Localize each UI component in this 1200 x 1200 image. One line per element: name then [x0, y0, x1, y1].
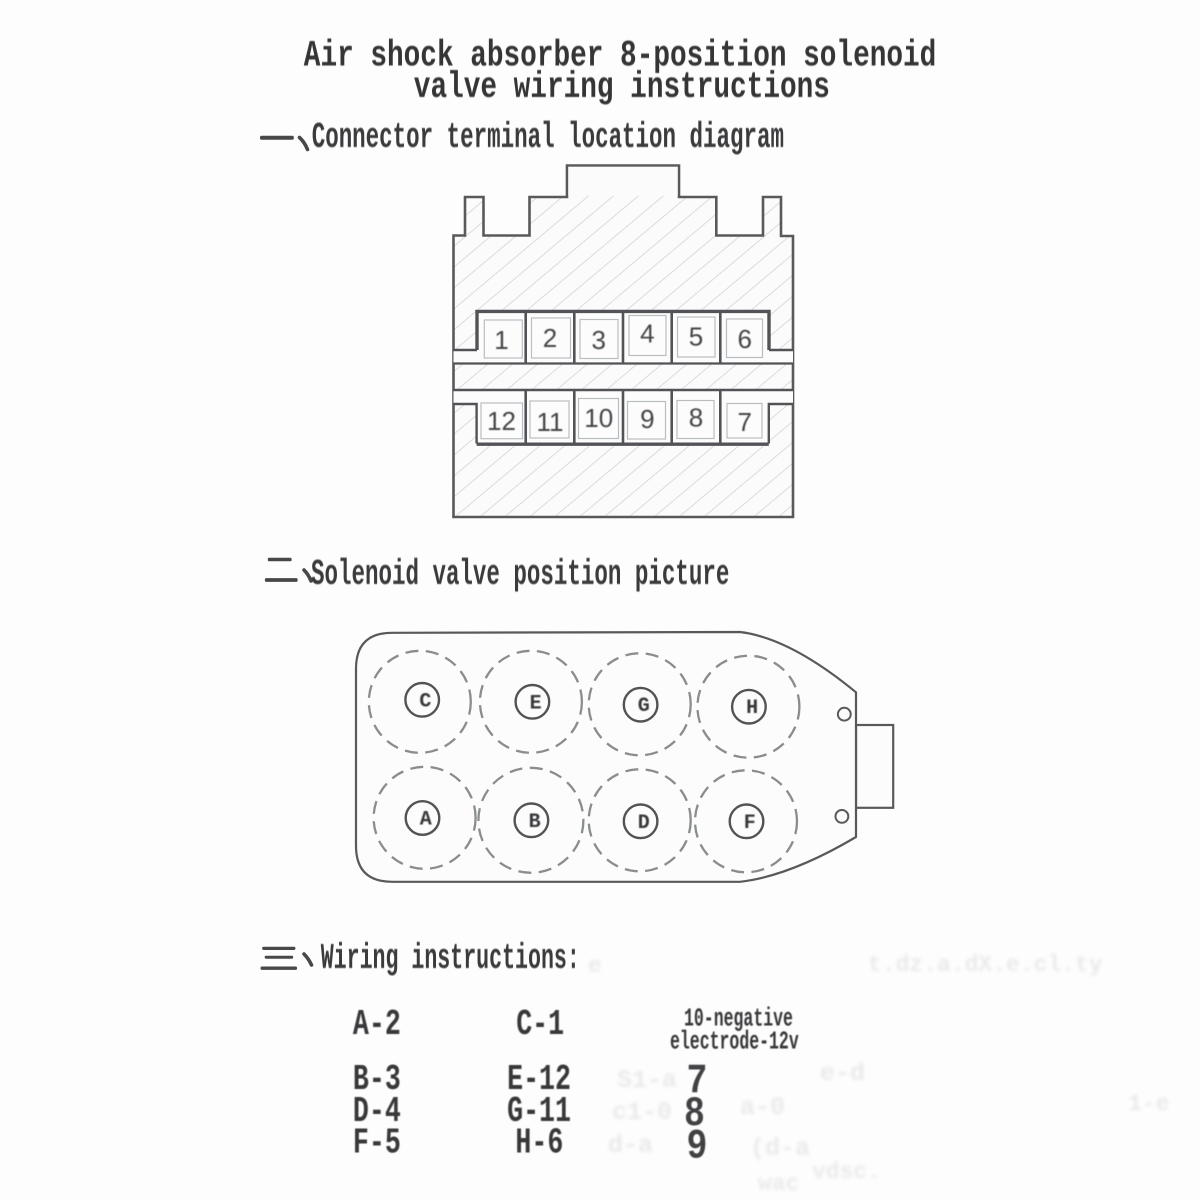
svg-text:10: 10: [584, 403, 613, 433]
svg-text:Solenoid valve position pictur: Solenoid valve position picture: [311, 555, 729, 596]
svg-text:B: B: [529, 811, 541, 834]
svg-text:9: 9: [687, 1123, 708, 1171]
svg-text:e-d: e-d: [820, 1059, 865, 1088]
svg-text:G: G: [638, 695, 650, 718]
svg-text:11: 11: [537, 407, 564, 437]
svg-text:C: C: [419, 690, 431, 713]
svg-text:A: A: [420, 809, 432, 832]
svg-text:C-1: C-1: [516, 1004, 564, 1045]
svg-text:Connector terminal location di: Connector terminal location diagram: [312, 118, 784, 159]
svg-text:E: E: [530, 692, 542, 715]
svg-text:F-5: F-5: [353, 1123, 401, 1164]
svg-text:4: 4: [640, 319, 654, 349]
svg-text:3: 3: [591, 325, 605, 355]
svg-text:12: 12: [487, 406, 516, 436]
svg-text:wac: wac: [758, 1171, 799, 1197]
svg-text:1-e: 1-e: [1128, 1091, 1169, 1117]
svg-text:valve wiring instructions: valve wiring instructions: [414, 66, 830, 108]
svg-text:5: 5: [689, 322, 703, 352]
svg-text:Wiring instructions:: Wiring instructions:: [321, 938, 580, 979]
svg-text:F: F: [744, 812, 756, 835]
svg-text:2: 2: [543, 323, 557, 353]
svg-text:D: D: [638, 812, 650, 835]
svg-text:H-6: H-6: [515, 1123, 563, 1164]
svg-text:c1-0: c1-0: [612, 1098, 672, 1127]
svg-text:t.dz.a.dX.e.cl.ty: t.dz.a.dX.e.cl.ty: [868, 952, 1103, 978]
svg-text:S1-a: S1-a: [617, 1066, 677, 1095]
svg-text:d-a: d-a: [608, 1131, 653, 1160]
svg-text:vdsc.: vdsc.: [812, 1159, 881, 1185]
svg-text:a-0: a-0: [740, 1093, 785, 1122]
svg-text:A-2: A-2: [353, 1004, 401, 1045]
svg-text:electrode-12v: electrode-12v: [670, 1027, 799, 1057]
svg-text:6: 6: [737, 324, 751, 354]
svg-text:(d-a: (d-a: [750, 1134, 810, 1163]
svg-text:1: 1: [494, 325, 508, 355]
svg-text:8: 8: [689, 403, 703, 433]
svg-text:H: H: [746, 697, 758, 720]
svg-text:9: 9: [640, 404, 654, 434]
svg-text:e: e: [588, 953, 602, 979]
svg-text:7: 7: [737, 407, 751, 437]
